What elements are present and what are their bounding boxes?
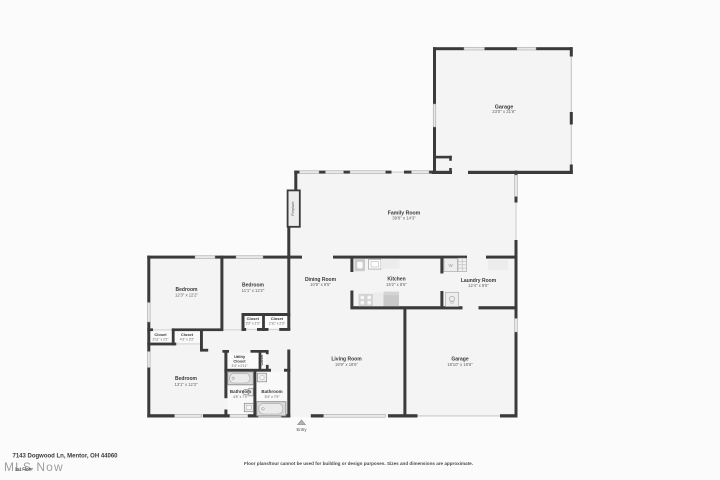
svg-text:12'4" x 8'5": 12'4" x 8'5" (468, 283, 489, 288)
svg-text:Closet: Closet (260, 354, 264, 366)
svg-text:Floor plans/tour cannot be use: Floor plans/tour cannot be used for buil… (244, 461, 473, 466)
svg-text:Closet: Closet (247, 316, 260, 321)
svg-text:23'0" x 21'6": 23'0" x 21'6" (492, 109, 516, 114)
svg-text:4'8" x 7'9": 4'8" x 7'9" (233, 395, 249, 399)
svg-text:1st Floor: 1st Floor (15, 466, 33, 471)
svg-text:Fireplace: Fireplace (291, 202, 295, 216)
svg-text:3'3" x 2'3": 3'3" x 2'3" (246, 322, 261, 326)
svg-text:19'9" x 18'6": 19'9" x 18'6" (335, 362, 358, 367)
svg-text:Entry: Entry (296, 427, 307, 432)
svg-text:5'3" x 7'9": 5'3" x 7'9" (265, 395, 281, 399)
svg-text:Closet: Closet (271, 316, 284, 321)
svg-text:7143 Dogwood Ln, Mentor, OH 44: 7143 Dogwood Ln, Mentor, OH 44060 (13, 453, 119, 459)
svg-text:Bathroom: Bathroom (261, 389, 282, 394)
svg-text:13'1" x 12'3": 13'1" x 12'3" (175, 382, 198, 387)
svg-text:4'3" x 2'2": 4'3" x 2'2" (180, 338, 195, 342)
svg-text:18'10" x 18'6": 18'10" x 18'6" (447, 362, 473, 367)
svg-text:Closet: Closet (154, 332, 167, 337)
svg-text:39'8" x 14'3": 39'8" x 14'3" (392, 216, 416, 221)
svg-text:3'11" x 2'2": 3'11" x 2'2" (152, 338, 169, 342)
svg-text:12'3" x 12'2": 12'3" x 12'2" (175, 292, 198, 297)
svg-text:Closet: Closet (233, 358, 246, 363)
svg-text:Closet: Closet (181, 332, 194, 337)
svg-text:Bathroom: Bathroom (230, 389, 251, 394)
svg-text:W: W (449, 263, 454, 268)
svg-text:MLS Now: MLS Now (4, 460, 64, 474)
svg-text:10'8" x 8'5": 10'8" x 8'5" (310, 282, 331, 287)
svg-text:2'11" x 2'3": 2'11" x 2'3" (269, 322, 286, 326)
svg-text:3'4" x 2'11": 3'4" x 2'11" (231, 364, 248, 368)
svg-text:15'2" x 8'5": 15'2" x 8'5" (386, 282, 407, 287)
svg-text:11'1" x 12'2": 11'1" x 12'2" (242, 288, 265, 293)
